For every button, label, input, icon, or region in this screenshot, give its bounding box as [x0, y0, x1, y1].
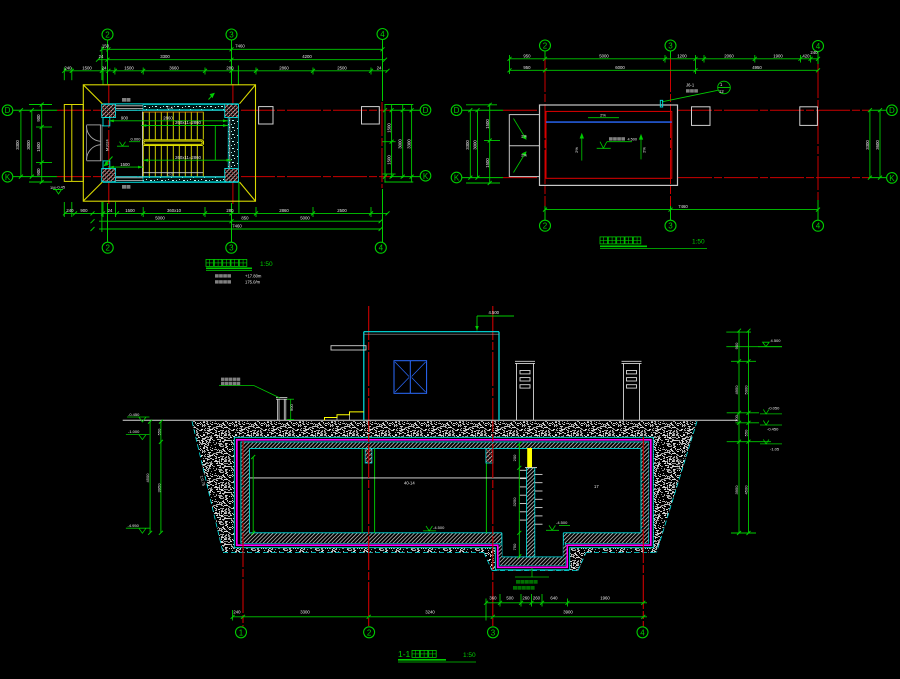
svg-text:1500: 1500 — [485, 119, 490, 129]
svg-text:3300: 3300 — [465, 140, 470, 150]
svg-text:3300: 3300 — [407, 139, 412, 149]
svg-text:240: 240 — [64, 65, 72, 70]
svg-text:2%: 2% — [600, 112, 606, 117]
svg-text:2: 2 — [105, 31, 110, 40]
svg-text:1960: 1960 — [600, 596, 610, 601]
svg-text:40-14: 40-14 — [404, 481, 415, 486]
svg-text:900: 900 — [36, 114, 41, 122]
svg-text:1: 1 — [239, 628, 244, 637]
svg-text:2500: 2500 — [337, 65, 347, 70]
svg-text:3950: 3950 — [734, 485, 739, 495]
svg-text:12: 12 — [719, 89, 724, 94]
svg-text:C-1: C-1 — [167, 106, 173, 110]
svg-text:750: 750 — [512, 543, 517, 550]
svg-text:2: 2 — [543, 42, 548, 51]
svg-text:-0.45: -0.45 — [56, 185, 66, 190]
svg-text:D: D — [454, 106, 460, 115]
svg-text:D: D — [5, 106, 11, 115]
svg-text:1500: 1500 — [36, 142, 41, 152]
svg-text:280: 280 — [226, 65, 234, 70]
svg-text:4500: 4500 — [145, 473, 150, 483]
svg-text:240: 240 — [233, 610, 241, 615]
svg-text:J6-1: J6-1 — [686, 83, 695, 88]
svg-text:500: 500 — [506, 596, 514, 601]
svg-text:-0.450: -0.450 — [767, 427, 779, 432]
svg-text:4950: 4950 — [734, 385, 739, 395]
svg-text:1500: 1500 — [82, 65, 92, 70]
svg-text:-4.950: -4.950 — [128, 523, 140, 528]
svg-text:550: 550 — [157, 428, 162, 435]
svg-text:3: 3 — [668, 222, 673, 231]
svg-text:260x11=2860: 260x11=2860 — [175, 120, 201, 125]
svg-text:-1.000: -1.000 — [128, 429, 140, 434]
svg-text:3300: 3300 — [300, 610, 310, 615]
svg-text:1500: 1500 — [124, 65, 134, 70]
svg-text:5000: 5000 — [744, 385, 749, 395]
svg-text:7460: 7460 — [678, 204, 688, 209]
svg-text:900: 900 — [121, 116, 129, 121]
svg-text:3: 3 — [229, 31, 234, 40]
svg-text:-0.450: -0.450 — [128, 412, 140, 417]
svg-text:M1024: M1024 — [105, 139, 109, 151]
svg-text:260: 260 — [522, 596, 530, 601]
svg-text:1-1: 1-1 — [398, 649, 411, 659]
svg-text:1900: 1900 — [773, 53, 783, 58]
svg-text:950: 950 — [523, 65, 531, 70]
svg-text:3000: 3000 — [26, 140, 31, 150]
svg-text:-4.500: -4.500 — [433, 525, 445, 530]
svg-text:280: 280 — [226, 208, 234, 213]
svg-text:-4.500: -4.500 — [556, 520, 568, 525]
svg-text:3300: 3300 — [865, 140, 870, 150]
svg-text:640: 640 — [550, 596, 558, 601]
svg-text:D: D — [889, 106, 895, 115]
svg-text:420: 420 — [802, 53, 810, 58]
svg-text:2860: 2860 — [163, 116, 173, 121]
svg-text:1500: 1500 — [120, 162, 130, 167]
svg-text:2: 2 — [105, 244, 110, 253]
svg-text:2860: 2860 — [279, 65, 289, 70]
svg-text:D: D — [423, 106, 429, 115]
svg-text:2500: 2500 — [337, 208, 347, 213]
svg-text:K: K — [454, 174, 460, 183]
svg-text:6000: 6000 — [615, 65, 625, 70]
svg-text:2%: 2% — [642, 147, 647, 153]
svg-text:24: 24 — [377, 65, 382, 70]
svg-text:950: 950 — [523, 53, 531, 58]
svg-text:1500: 1500 — [387, 155, 392, 165]
svg-text:240: 240 — [66, 208, 74, 213]
svg-text:1:50: 1:50 — [260, 261, 273, 268]
svg-text:K: K — [889, 174, 895, 183]
svg-text:24: 24 — [108, 208, 113, 213]
svg-text:3: 3 — [491, 628, 496, 637]
svg-text:2%: 2% — [521, 153, 527, 158]
svg-text:17: 17 — [594, 484, 599, 489]
svg-text:2: 2 — [367, 628, 372, 637]
svg-text:4200: 4200 — [302, 54, 312, 59]
svg-text:0.000: 0.000 — [131, 137, 142, 142]
svg-text:1200: 1200 — [677, 53, 687, 58]
svg-text:3300: 3300 — [160, 54, 170, 59]
svg-text:2%: 2% — [521, 134, 527, 139]
svg-text:3600: 3600 — [875, 140, 880, 150]
svg-text:260x11=2860: 260x11=2860 — [175, 155, 201, 160]
svg-text:4.500: 4.500 — [628, 137, 638, 141]
svg-text:900: 900 — [734, 342, 739, 349]
svg-text:3000: 3000 — [398, 139, 403, 149]
svg-text:900: 900 — [289, 404, 294, 411]
svg-text:3: 3 — [229, 244, 234, 253]
svg-text:360x10: 360x10 — [167, 208, 182, 213]
svg-text:360: 360 — [489, 596, 497, 601]
svg-text:4: 4 — [380, 30, 385, 39]
svg-text:-0.050: -0.050 — [768, 405, 780, 410]
svg-text:900: 900 — [36, 168, 41, 176]
svg-text:4.500: 4.500 — [771, 338, 782, 343]
svg-text:2: 2 — [543, 222, 548, 231]
svg-text:5000: 5000 — [300, 216, 310, 221]
svg-text:260: 260 — [533, 596, 541, 601]
svg-text:100: 100 — [734, 414, 739, 421]
svg-text:175.0/m: 175.0/m — [245, 280, 261, 285]
svg-text:2860: 2860 — [279, 208, 289, 213]
svg-text:3950: 3950 — [157, 483, 162, 493]
svg-text:1500: 1500 — [125, 208, 135, 213]
svg-text:24: 24 — [102, 65, 107, 70]
svg-text:7460: 7460 — [235, 44, 245, 49]
svg-text:3660: 3660 — [169, 65, 179, 70]
svg-text:5000: 5000 — [599, 53, 609, 58]
svg-text:3900: 3900 — [563, 610, 573, 615]
svg-text:150: 150 — [102, 44, 110, 49]
svg-text:-1.05: -1.05 — [770, 446, 780, 451]
svg-text:1M: 1M — [50, 185, 56, 190]
svg-text:3000: 3000 — [473, 140, 478, 150]
svg-text:1:50: 1:50 — [692, 239, 705, 246]
svg-text:K: K — [423, 172, 429, 181]
svg-text:1500: 1500 — [485, 158, 490, 168]
svg-text:4: 4 — [379, 244, 384, 253]
svg-text:3250: 3250 — [512, 497, 517, 507]
svg-text:C-1: C-1 — [167, 172, 173, 176]
svg-text:K: K — [5, 173, 11, 182]
svg-text:4.500: 4.500 — [489, 310, 500, 315]
svg-text:1500: 1500 — [387, 123, 392, 133]
svg-text:240: 240 — [810, 50, 818, 55]
svg-text:4950: 4950 — [752, 65, 762, 70]
svg-text:850: 850 — [241, 216, 249, 221]
svg-text:4: 4 — [816, 222, 821, 231]
svg-text:24: 24 — [99, 54, 104, 59]
svg-text:5000: 5000 — [155, 216, 165, 221]
svg-text:3: 3 — [668, 42, 673, 51]
svg-text:550: 550 — [744, 429, 749, 436]
svg-text:3240: 3240 — [425, 610, 435, 615]
svg-text:+17.80m: +17.80m — [245, 274, 262, 279]
svg-text:2%: 2% — [574, 147, 579, 153]
svg-text:2060: 2060 — [724, 53, 734, 58]
svg-text:7460: 7460 — [232, 223, 242, 228]
svg-text:3300: 3300 — [15, 140, 20, 150]
svg-text:200: 200 — [512, 454, 517, 461]
svg-text:1:50: 1:50 — [463, 652, 476, 659]
svg-text:4: 4 — [640, 628, 645, 637]
svg-text:900: 900 — [80, 208, 88, 213]
svg-text:4500: 4500 — [744, 485, 749, 495]
